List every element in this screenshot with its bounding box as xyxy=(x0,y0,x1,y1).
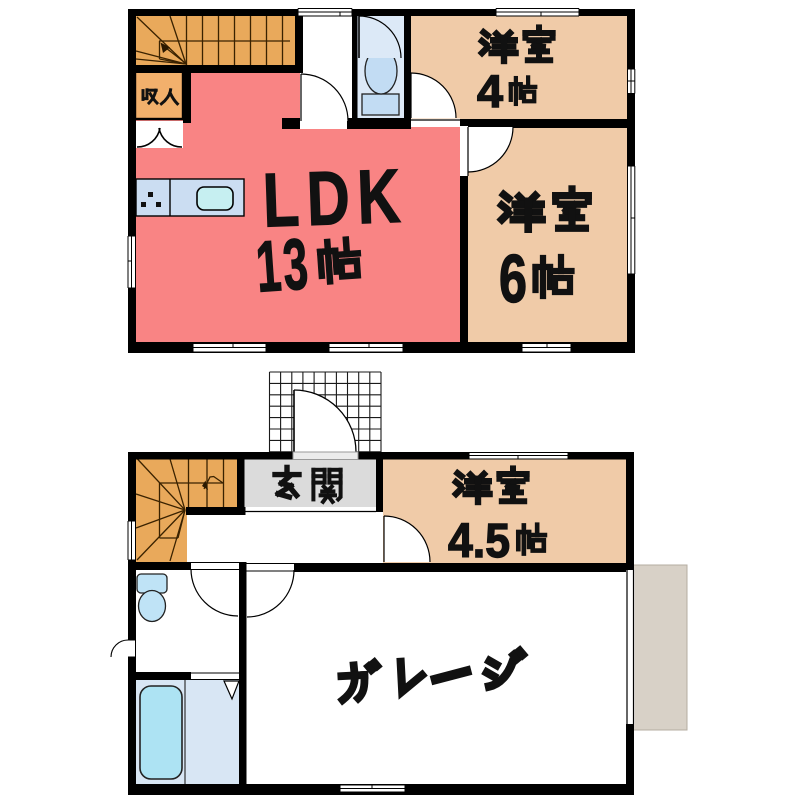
svg-text:4: 4 xyxy=(477,66,503,117)
svg-text:6: 6 xyxy=(499,241,527,317)
svg-text:4.5: 4.5 xyxy=(448,515,510,568)
svg-text:13: 13 xyxy=(253,224,312,308)
